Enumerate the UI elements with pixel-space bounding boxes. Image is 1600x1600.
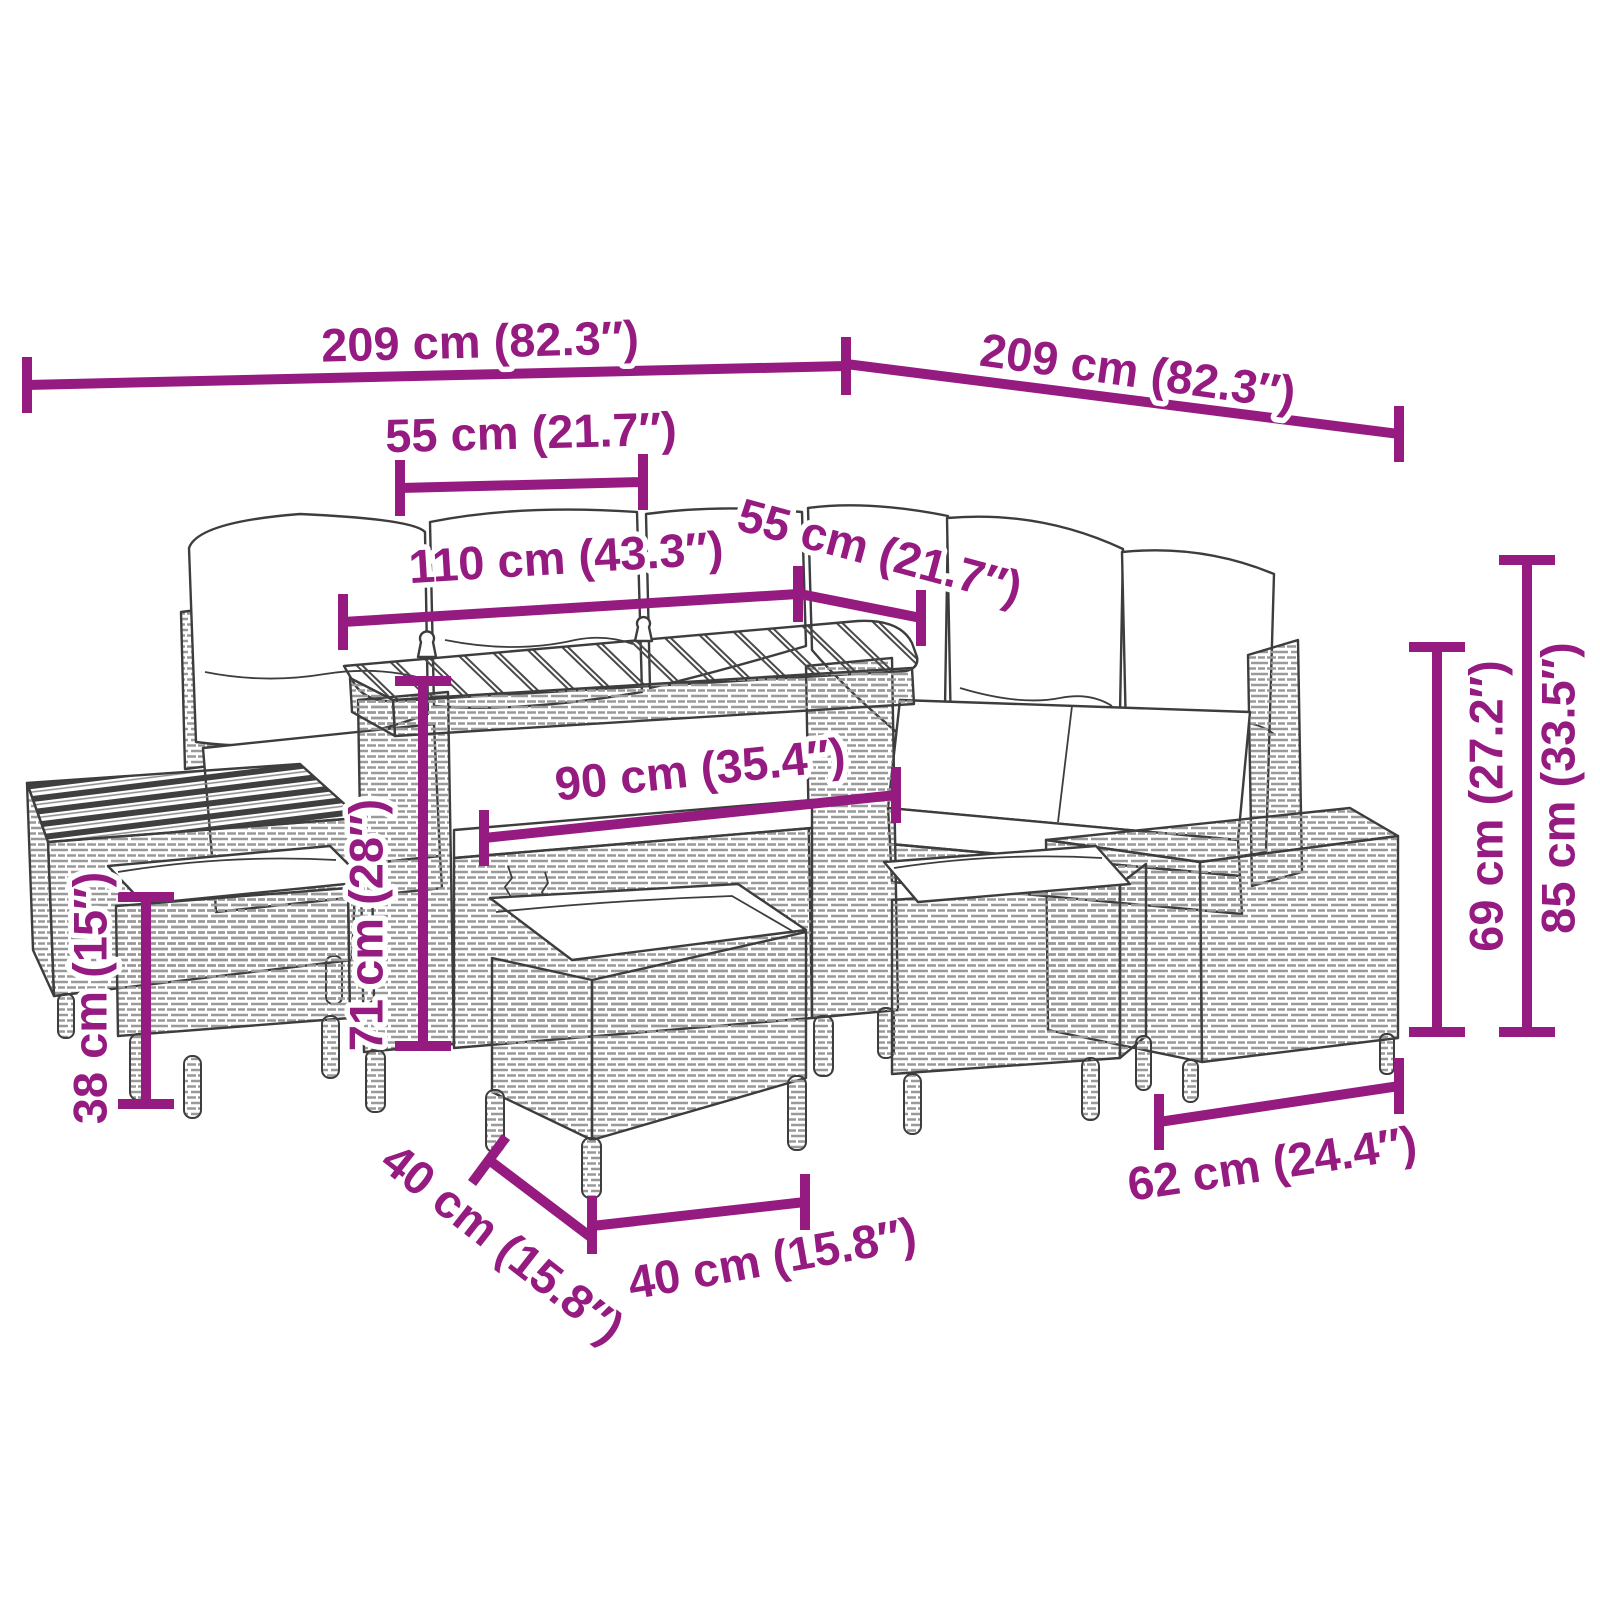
dimension-seat-depth-left: 55 cm (21.7″) — [385, 402, 678, 516]
dimension-label: 85 cm (33.5″) — [1532, 642, 1585, 934]
stool-leg — [322, 1016, 339, 1078]
furniture-illustration — [27, 505, 1398, 1198]
dimension-label: 69 cm (27.2″) — [1460, 660, 1513, 952]
dimension-side-table-width: 62 cm (24.4″) — [1124, 1058, 1420, 1211]
stool-body — [492, 958, 592, 1140]
table-right-panel — [806, 658, 898, 1018]
side-table-right-front — [1200, 836, 1398, 1062]
stool-leg — [904, 1074, 921, 1134]
stool-leg — [184, 1056, 201, 1118]
side-table-right-leg — [1380, 1034, 1394, 1074]
dimension-label: 209 cm (82.3″) — [320, 310, 639, 371]
dimension-sofa-right-length: 209 cm (82.3″) — [846, 323, 1399, 462]
dimension-diagram: 209 cm (82.3″) 209 cm (82.3″) 55 cm (21.… — [0, 0, 1600, 1600]
diagram-canvas: 209 cm (82.3″) 209 cm (82.3″) 55 cm (21.… — [0, 0, 1600, 1600]
stool-leg — [788, 1076, 806, 1150]
dimension-label: 38 cm (15″) — [64, 872, 117, 1124]
stool-leg — [1136, 1036, 1151, 1090]
table-knob — [418, 631, 436, 657]
table-leg — [366, 1050, 385, 1112]
dimension-label: 62 cm (24.4″) — [1124, 1115, 1420, 1211]
stool-body — [116, 888, 350, 1036]
dimension-armrest-height: 69 cm (27.2″) — [1409, 647, 1513, 1032]
table-knob — [635, 617, 652, 641]
side-table-right-leg — [1183, 1060, 1198, 1102]
stool-leg — [1082, 1058, 1099, 1120]
dimension-sofa-left-length: 209 cm (82.3″) — [27, 310, 846, 413]
dimension-label: 71 cm (28″) — [340, 799, 393, 1051]
table-leg — [814, 1016, 833, 1076]
stool-leg — [582, 1138, 601, 1198]
dimension-label: 90 cm (35.4″) — [552, 727, 848, 810]
dimension-label: 55 cm (21.7″) — [385, 402, 678, 463]
stool-body — [892, 884, 1120, 1074]
stool-body-side — [1120, 864, 1146, 1058]
dimension-stool-width: 40 cm (15.8″) — [592, 1174, 920, 1309]
